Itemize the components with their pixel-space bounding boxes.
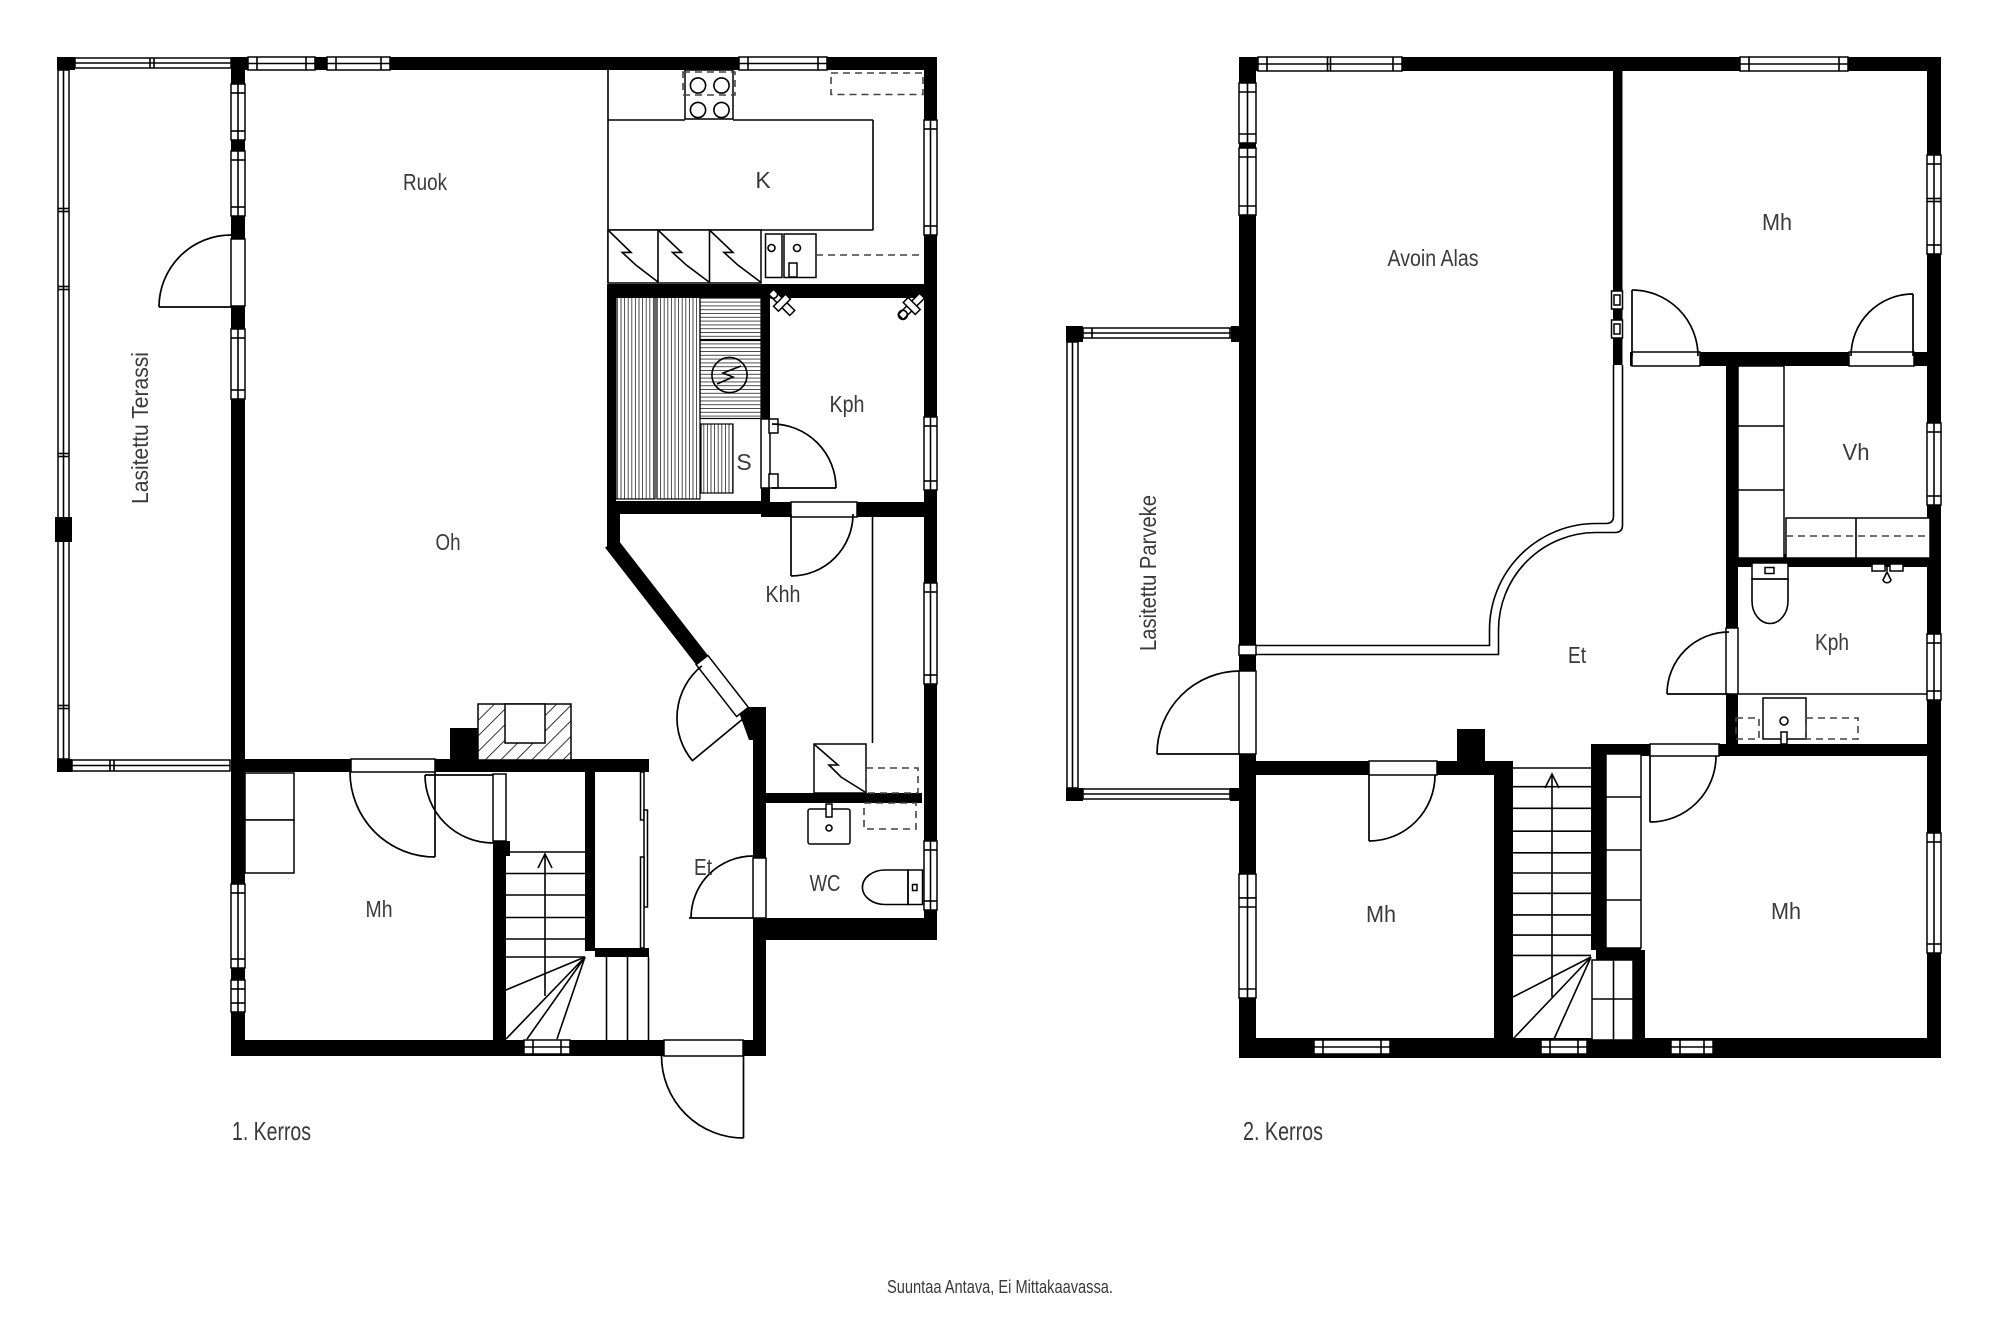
svg-text:Mh: Mh	[1771, 898, 1801, 924]
svg-text:S: S	[736, 449, 751, 475]
svg-text:Vh: Vh	[1843, 439, 1870, 465]
svg-text:Mh: Mh	[366, 896, 393, 922]
svg-text:Kph: Kph	[830, 391, 865, 417]
svg-text:WC: WC	[810, 870, 841, 896]
svg-text:Avoin Alas: Avoin Alas	[1388, 245, 1479, 271]
svg-text:1. Kerros: 1. Kerros	[232, 1116, 311, 1146]
svg-text:K: K	[755, 167, 771, 193]
svg-text:Suuntaa Antava, Ei Mittakaavas: Suuntaa Antava, Ei Mittakaavassa.	[887, 1277, 1113, 1297]
svg-text:Kph: Kph	[1815, 629, 1849, 655]
svg-text:Lasitettu Parveke: Lasitettu Parveke	[1135, 495, 1161, 651]
svg-text:2. Kerros: 2. Kerros	[1243, 1116, 1323, 1146]
svg-text:Mh: Mh	[1762, 209, 1792, 235]
svg-text:Mh: Mh	[1366, 901, 1396, 927]
svg-text:Et: Et	[694, 854, 713, 880]
svg-text:Oh: Oh	[436, 529, 461, 555]
svg-text:Khh: Khh	[766, 581, 801, 607]
svg-text:Ruok: Ruok	[403, 169, 447, 195]
svg-text:Et: Et	[1568, 642, 1587, 668]
svg-text:Lasitettu Terassi: Lasitettu Terassi	[127, 352, 153, 504]
